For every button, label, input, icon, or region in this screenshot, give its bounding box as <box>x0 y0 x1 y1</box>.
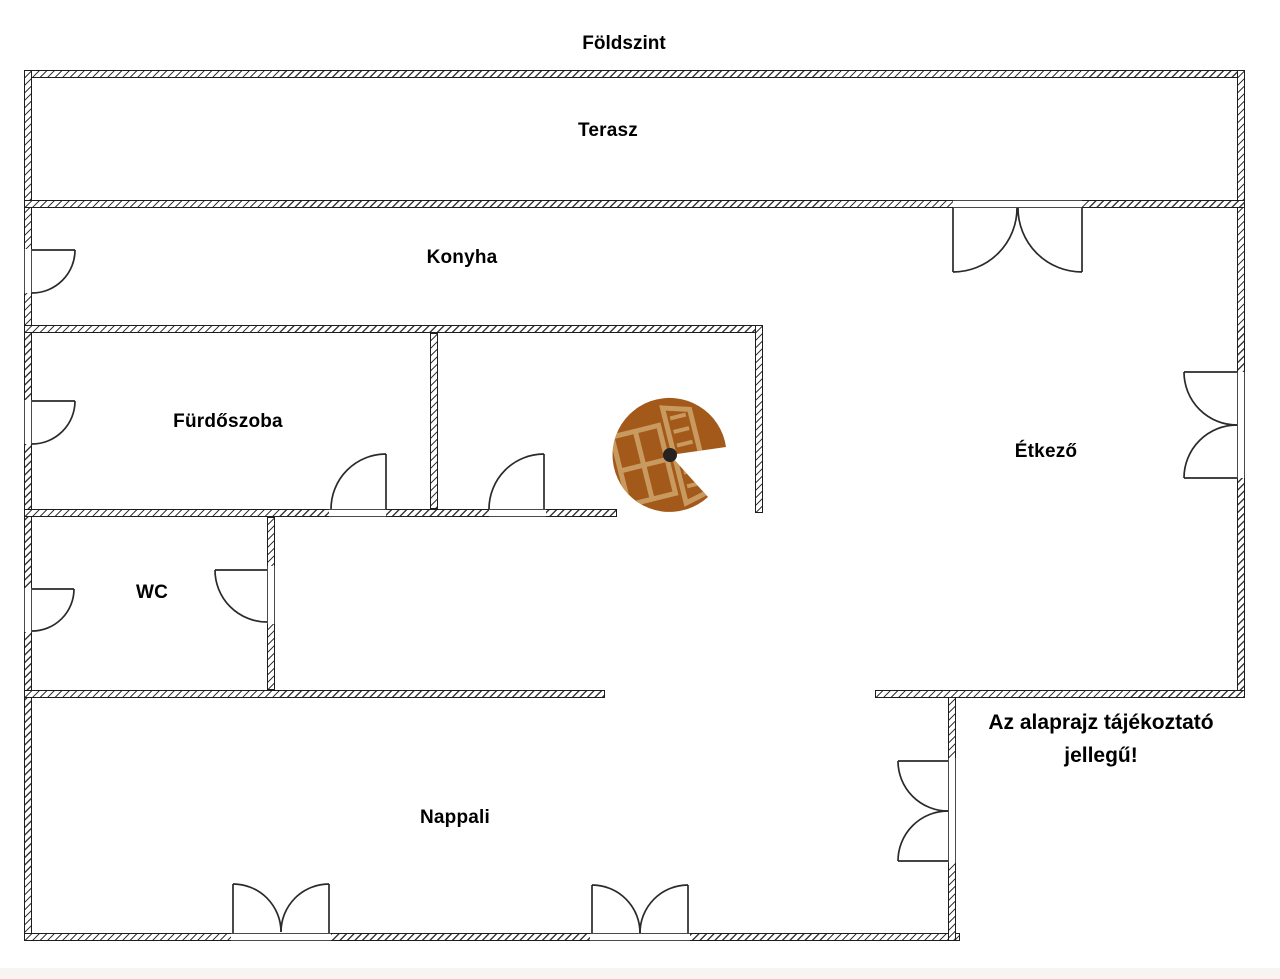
room-label-nappali: Nappali <box>420 807 490 829</box>
door-swing-nappali-right-double <box>898 761 948 861</box>
footer-strip <box>0 968 1280 979</box>
door-swing-stair-room <box>489 454 544 509</box>
room-label-terasz: Terasz <box>578 120 638 142</box>
door-swing-furdoszoba <box>331 454 386 509</box>
room-label-etkezo: Étkező <box>1015 441 1077 463</box>
door-swing-wc <box>215 570 267 622</box>
door-swing-furdoszoba-left <box>32 401 75 444</box>
door-swing-nappali-bottom-1 <box>233 884 329 933</box>
room-label-konyha: Konyha <box>427 247 498 269</box>
door-swing-konyha <box>32 250 75 293</box>
disclaimer-text: Az alaprajz tájékoztató jellegű! <box>951 706 1251 772</box>
door-swing-wc-left <box>32 589 74 631</box>
floor-plan-canvas: Földszint Terasz Konyha Fürdőszoba Étkez… <box>0 0 1280 979</box>
room-label-furdoszoba: Fürdőszoba <box>173 411 283 433</box>
page-title: Földszint <box>582 33 665 55</box>
door-swing-nappali-bottom-2 <box>592 885 688 933</box>
room-label-wc: WC <box>136 582 168 604</box>
door-swing-etkezo-double <box>1184 372 1237 478</box>
doors-and-stairs-layer <box>0 0 1280 979</box>
spiral-staircase-icon <box>608 398 726 517</box>
door-swing-terasz-double <box>953 208 1082 272</box>
